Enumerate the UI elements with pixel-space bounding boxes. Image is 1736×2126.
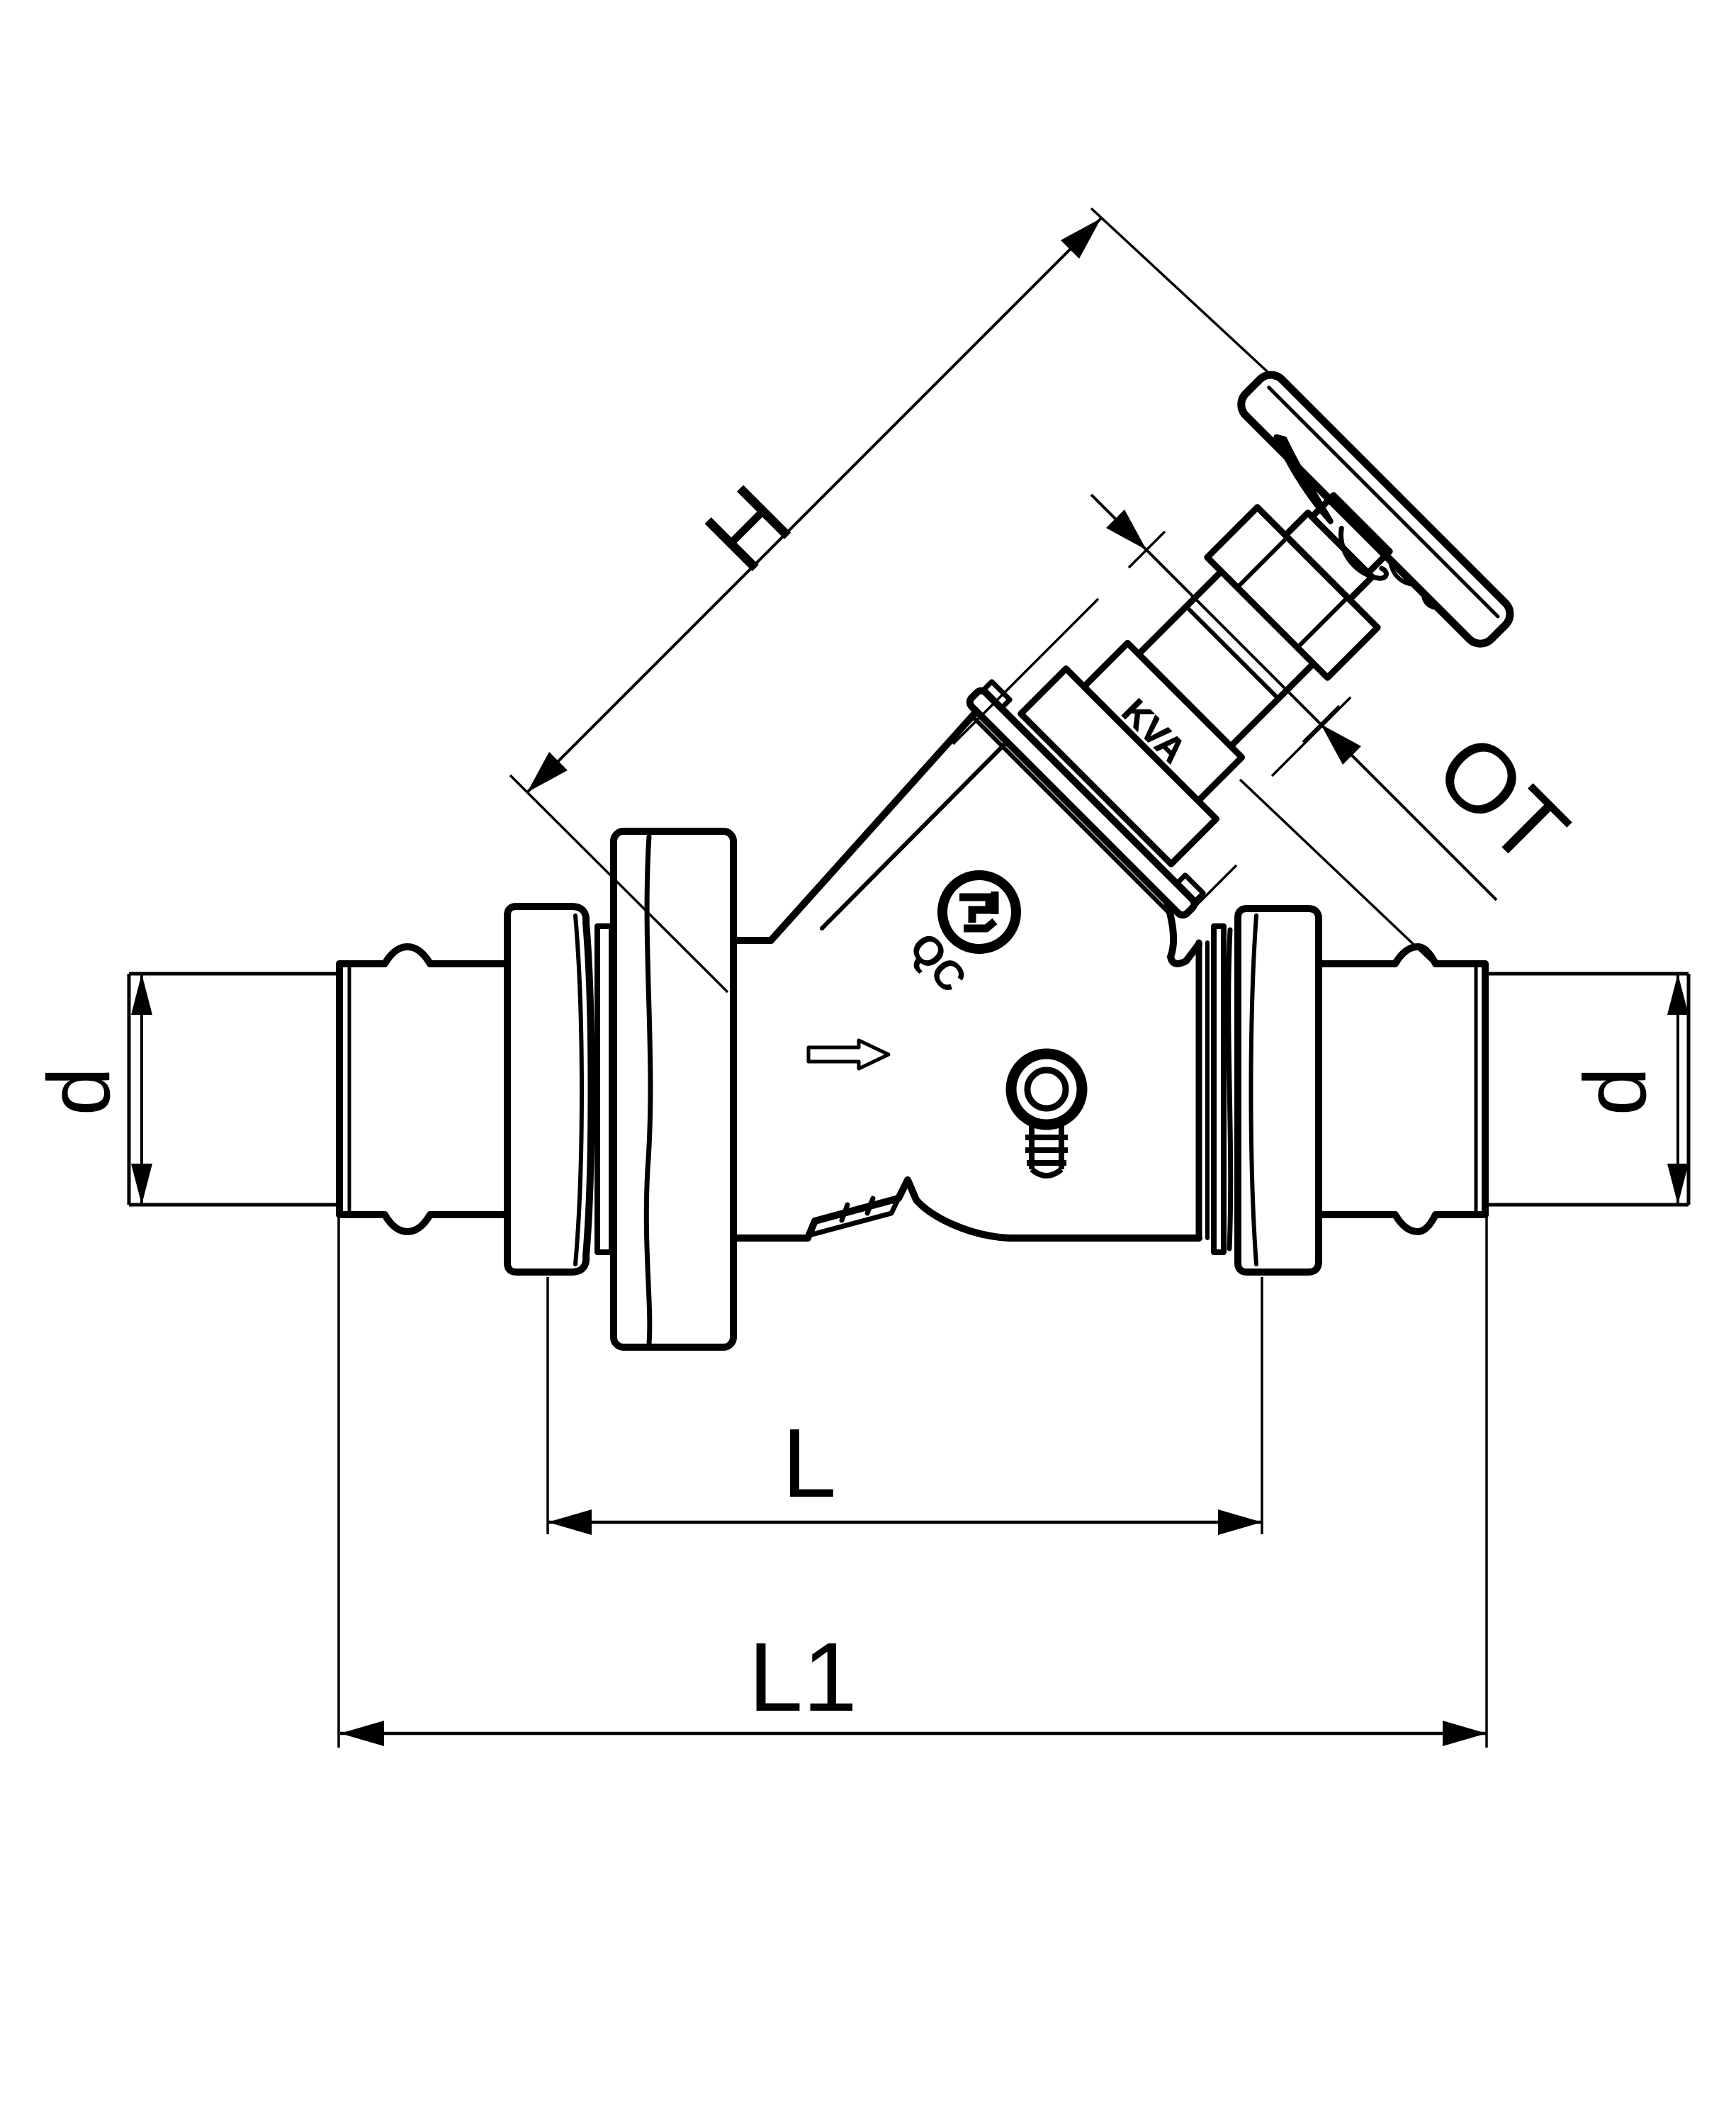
dimension-d-left (131, 974, 152, 1205)
bonnet-cast-mark: KVA (1115, 692, 1194, 771)
dimension-L (548, 1277, 1262, 1535)
dimension-L1 (339, 1216, 1487, 1748)
dimension-H (510, 208, 1275, 992)
flow-direction-arrow-icon (808, 1040, 889, 1069)
valve-technical-drawing: QC (0, 0, 1736, 2126)
dim-line-H (527, 218, 1101, 792)
manufacturer-logo-icon (942, 875, 1016, 949)
drain-port-icon (1011, 1054, 1082, 1176)
bonnet-assembly: KVA (947, 369, 1516, 938)
dim-label-OT: OT (1415, 714, 1588, 887)
body-markings: QC (808, 875, 1082, 1176)
body-cast-mark: QC (901, 924, 976, 1001)
body-collar-left (614, 831, 733, 1347)
dim-label-L: L (782, 1409, 837, 1518)
handwheel (1214, 369, 1516, 671)
press-connection-right (1199, 909, 1485, 1272)
pipe-left (129, 974, 338, 1205)
dim-label-L1: L1 (748, 1623, 857, 1732)
dim-label-H: H (684, 465, 811, 592)
dim-label-d-left: d (30, 1067, 128, 1116)
construction-line (1240, 780, 1436, 966)
bonnet-base (1021, 668, 1217, 864)
dim-label-d-right: d (1567, 1067, 1664, 1116)
ext-line-H-upper (1091, 208, 1275, 379)
ext-line-H-lower (510, 775, 728, 992)
dimension-d-right (1667, 974, 1689, 1205)
press-connection-left (339, 906, 611, 1272)
drawing-page: QC (0, 0, 1736, 2126)
